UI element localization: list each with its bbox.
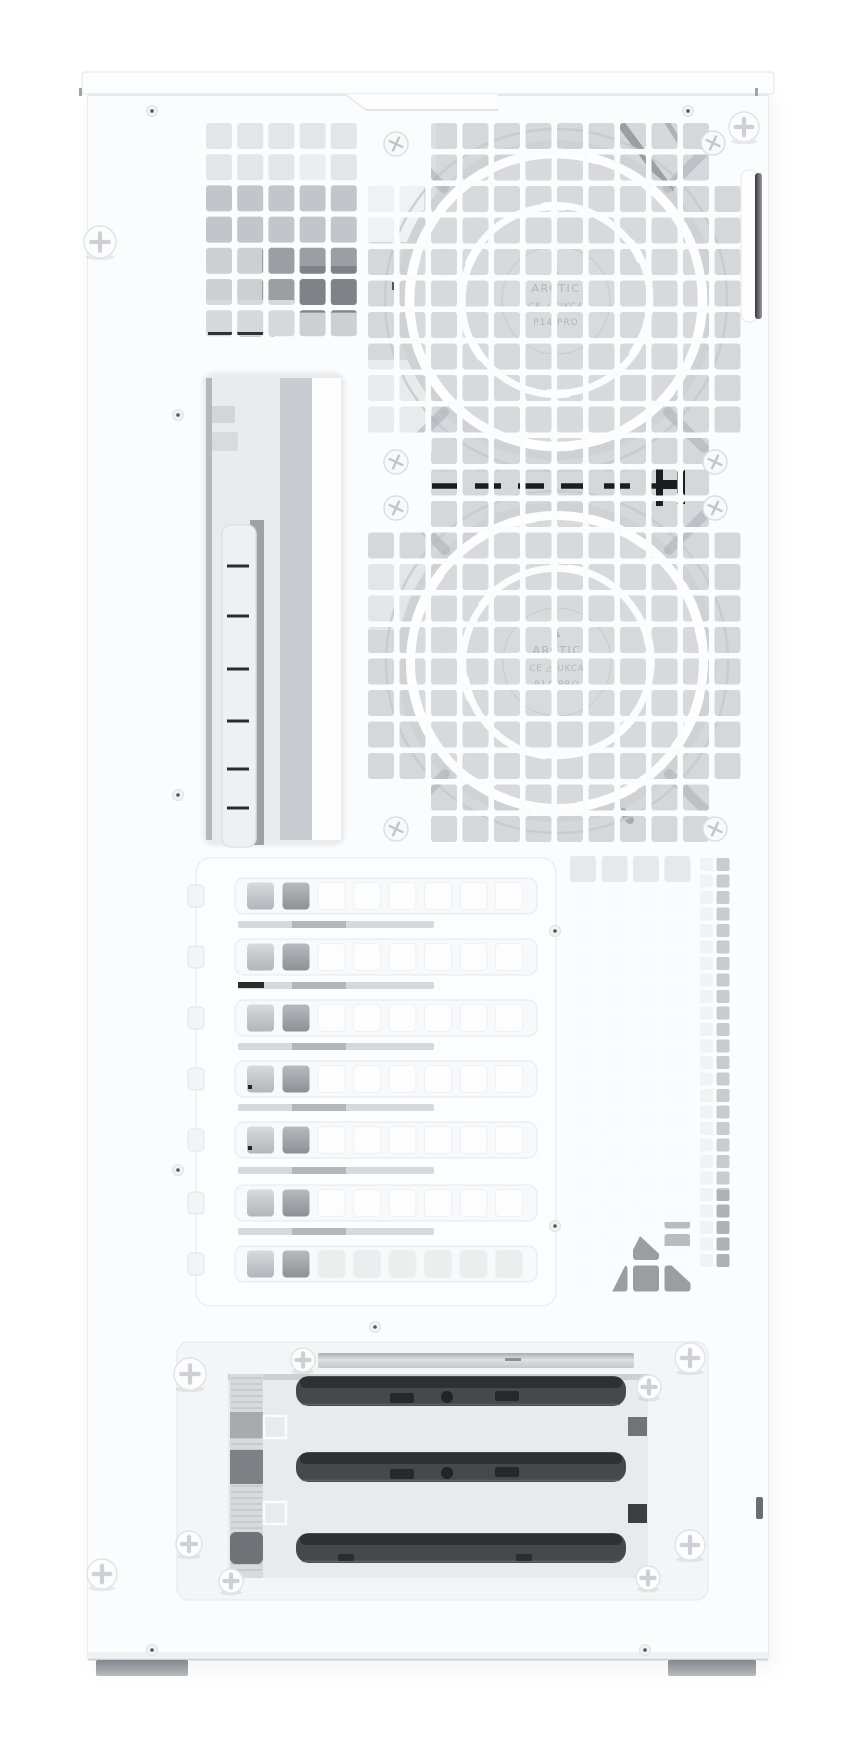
vent-hole: [354, 1127, 381, 1154]
vent-hole: [460, 883, 487, 910]
pci-slot-covers: [235, 878, 537, 1282]
vent-hole: [460, 944, 487, 971]
panel-screw: [703, 450, 727, 474]
vent-hole: [460, 1066, 487, 1093]
tray-clip: [495, 1391, 519, 1401]
vent-hole: [425, 1190, 452, 1217]
vent-hole: [283, 1251, 310, 1278]
pci-slot-cover: [235, 878, 537, 914]
vent-hole: [496, 944, 523, 971]
tray-clip: [338, 1554, 354, 1561]
tray-clip: [390, 1393, 414, 1403]
vent-hole: [425, 1066, 452, 1093]
thumbscrew: [176, 1531, 202, 1559]
vent-hole: [247, 883, 274, 910]
vent-hole: [318, 1190, 345, 1217]
panel-screw: [384, 132, 408, 156]
vent-hole: [283, 1005, 310, 1032]
screw-hole-dot: [173, 1165, 184, 1176]
slot-gap-cable: [238, 982, 264, 988]
vent-hole: [425, 944, 452, 971]
thumbscrew: [219, 1569, 243, 1595]
thumbscrew: [291, 1348, 315, 1374]
vent-hole: [460, 1251, 487, 1278]
vent-hole: [318, 1005, 345, 1032]
screw-hole-dot: [147, 1645, 158, 1656]
vent-hole: [496, 1251, 523, 1278]
vent-hole: [354, 1066, 381, 1093]
panel-screw: [384, 450, 408, 474]
screw-hole-dot: [173, 790, 184, 801]
pci-slot-tab: [188, 1007, 204, 1029]
vent-hole: [247, 1005, 274, 1032]
vent-hole: [283, 944, 310, 971]
pci-slot-tab: [188, 1129, 204, 1151]
vent-hole: [496, 1005, 523, 1032]
pci-slot-cover: [235, 939, 537, 975]
vent-hole: [318, 1127, 345, 1154]
pci-slot-area: [188, 858, 556, 1306]
screw-hole-dot: [147, 106, 158, 117]
tray-clip: [495, 1467, 519, 1477]
vent-hole: [460, 1190, 487, 1217]
vent-hole: [389, 944, 416, 971]
vent-hole: [283, 883, 310, 910]
pci-slot-cover: [235, 1061, 537, 1097]
case-foot-left: [96, 1660, 188, 1676]
slot-screw-dot: [248, 1085, 252, 1089]
panel-screw: [703, 817, 727, 841]
vent-hole: [496, 1066, 523, 1093]
thumbscrew: [729, 112, 759, 144]
pci-slot-cover: [235, 1246, 537, 1282]
bracket-rail: [222, 525, 256, 847]
vent-hole: [247, 1251, 274, 1278]
pci-slot-tab: [188, 1253, 204, 1275]
vent-hole: [283, 1127, 310, 1154]
pci-slot-tab: [188, 885, 204, 907]
panel-screw: [703, 496, 727, 520]
pci-slot-cover: [235, 1000, 537, 1036]
cap-notch: [79, 88, 82, 96]
vent-hole: [247, 1190, 274, 1217]
thumbscrew: [637, 1375, 661, 1401]
vent-hole: [496, 1127, 523, 1154]
vent-hole: [389, 1251, 416, 1278]
case-foot-right: [668, 1660, 756, 1676]
vent-hole: [354, 883, 381, 910]
tray-hole: [441, 1467, 453, 1479]
pci-slot-cover: [235, 1185, 537, 1221]
cage-dark-square: [628, 1504, 647, 1523]
vent-hole: [496, 1190, 523, 1217]
vent-hole: [283, 1066, 310, 1093]
top-latch-tab: [345, 94, 498, 110]
vent-hole: [389, 1190, 416, 1217]
panel-screw: [384, 817, 408, 841]
vent-hole: [389, 1127, 416, 1154]
drive-tray: [296, 1376, 626, 1406]
vent-hole: [425, 1127, 452, 1154]
vent-hole: [425, 1251, 452, 1278]
vent-hole: [389, 883, 416, 910]
bottom-access-panel: [177, 1342, 708, 1600]
slot-screw-dot: [248, 1146, 252, 1150]
tray-hole: [441, 1391, 453, 1403]
screw-hole-dot: [550, 926, 561, 937]
thumbscrew: [675, 1530, 705, 1562]
psu-bracket-bar: [318, 1353, 634, 1368]
panel-handle-groove: [741, 170, 762, 322]
screw-hole-dot: [683, 106, 694, 117]
drive-cage-rail: [230, 1374, 263, 1578]
vent-hole: [389, 1066, 416, 1093]
thumbscrew: [636, 1566, 660, 1592]
vent-hole: [283, 1190, 310, 1217]
pci-slot-tab: [188, 1068, 204, 1090]
cutout-light-gap: [311, 378, 341, 840]
thumbscrew: [675, 1343, 705, 1375]
product-photo-stage: ▲ ARCTIC CE △ UKCA P14 PRO ▲ ARCTIC CE △…: [0, 0, 857, 1754]
vent-hole: [354, 1251, 381, 1278]
vent-hole: [496, 883, 523, 910]
vent-hole: [460, 1127, 487, 1154]
vent-hole: [318, 883, 345, 910]
pc-case-photo: ▲ ARCTIC CE △ UKCA P14 PRO ▲ ARCTIC CE △…: [0, 0, 857, 1754]
vent-hole: [460, 1005, 487, 1032]
drive-tray: [296, 1452, 626, 1482]
vent-hole: [389, 1005, 416, 1032]
tray-clip: [390, 1469, 414, 1479]
pci-slot-cover: [235, 1122, 537, 1158]
vent-hole: [318, 944, 345, 971]
vent-hole: [247, 944, 274, 971]
vent-hole: [425, 1005, 452, 1032]
vent-hole: [318, 1066, 345, 1093]
pci-slot-tab: [188, 1192, 204, 1214]
vent-hole: [425, 883, 452, 910]
thumbscrew: [87, 1559, 117, 1591]
cage-dark-square: [628, 1417, 647, 1436]
cap-notch: [755, 88, 758, 96]
side-bracket-cutout: [202, 372, 345, 847]
drive-tray: [296, 1533, 626, 1563]
pc-case: ▲ ARCTIC CE △ UKCA P14 PRO ▲ ARCTIC CE △…: [79, 72, 774, 1676]
screw-hole-dot: [550, 1221, 561, 1232]
vent-hole: [354, 1190, 381, 1217]
drive-trays: [296, 1376, 626, 1563]
pci-slot-tab: [188, 946, 204, 968]
vent-hole: [354, 1005, 381, 1032]
vent-hole: [318, 1251, 345, 1278]
panel-screw: [384, 496, 408, 520]
vent-hole: [354, 944, 381, 971]
screw-hole-dot: [173, 410, 184, 421]
rear-notch: [756, 1497, 763, 1519]
tray-clip: [516, 1554, 532, 1561]
panel-screw: [701, 131, 725, 155]
screw-hole-dot: [370, 1322, 381, 1333]
screw-hole-dot: [640, 1645, 651, 1656]
